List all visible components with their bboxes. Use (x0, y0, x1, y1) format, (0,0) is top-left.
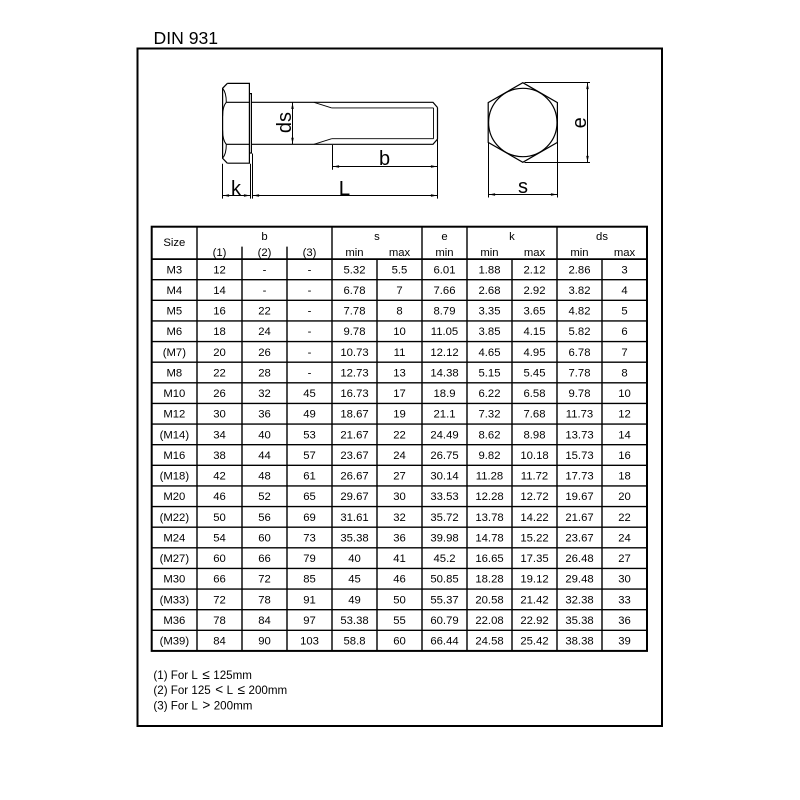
svg-text:-: - (308, 347, 312, 359)
svg-text:(M18): (M18) (160, 471, 190, 483)
svg-text:30: 30 (213, 409, 226, 421)
svg-text:20: 20 (213, 347, 226, 359)
svg-text:max: max (524, 247, 546, 259)
svg-text:30: 30 (618, 574, 631, 586)
svg-text:19.12: 19.12 (520, 574, 548, 586)
svg-text:97: 97 (303, 615, 316, 627)
svg-text:17.73: 17.73 (565, 471, 593, 483)
svg-text:65: 65 (303, 491, 316, 503)
svg-text:21.67: 21.67 (340, 429, 368, 441)
svg-text:3.65: 3.65 (524, 306, 546, 318)
svg-text:55: 55 (393, 615, 406, 627)
svg-text:s: s (374, 231, 380, 243)
svg-text:4.65: 4.65 (479, 347, 501, 359)
svg-text:7.78: 7.78 (344, 306, 366, 318)
svg-text:35.38: 35.38 (340, 532, 368, 544)
svg-text:103: 103 (300, 635, 319, 647)
svg-text:21.67: 21.67 (565, 512, 593, 524)
svg-text:7.32: 7.32 (479, 409, 501, 421)
svg-text:40: 40 (348, 553, 361, 565)
svg-text:46: 46 (213, 491, 226, 503)
svg-text:45: 45 (303, 388, 316, 400)
svg-text:-: - (263, 285, 267, 297)
svg-text:-: - (308, 285, 312, 297)
svg-text:19.67: 19.67 (565, 491, 593, 503)
svg-text:7.68: 7.68 (524, 409, 546, 421)
svg-text:9.78: 9.78 (344, 326, 366, 338)
svg-text:26.48: 26.48 (565, 553, 593, 565)
svg-text:11.72: 11.72 (521, 471, 548, 483)
svg-text:48: 48 (258, 471, 271, 483)
svg-text:6.22: 6.22 (479, 388, 501, 400)
svg-text:10: 10 (618, 388, 631, 400)
svg-text:13.78: 13.78 (475, 512, 503, 524)
svg-text:5.15: 5.15 (479, 367, 501, 379)
svg-text:7.66: 7.66 (434, 285, 456, 297)
svg-text:18.67: 18.67 (340, 409, 368, 421)
svg-text:2.68: 2.68 (479, 285, 501, 297)
svg-text:16.65: 16.65 (475, 553, 503, 565)
svg-text:35.72: 35.72 (430, 512, 458, 524)
svg-text:24: 24 (258, 326, 271, 338)
svg-text:66: 66 (213, 574, 226, 586)
svg-text:46: 46 (393, 574, 406, 586)
svg-text:3.85: 3.85 (479, 326, 501, 338)
svg-text:35.38: 35.38 (565, 615, 593, 627)
svg-text:(M39): (M39) (160, 635, 190, 647)
svg-text:6.01: 6.01 (434, 264, 456, 276)
svg-text:(M33): (M33) (160, 594, 190, 606)
svg-text:25.42: 25.42 (520, 635, 548, 647)
svg-text:(2): (2) (258, 247, 272, 259)
svg-text:min: min (480, 247, 498, 259)
svg-text:85: 85 (303, 574, 316, 586)
svg-text:30: 30 (393, 491, 406, 503)
svg-text:-: - (263, 264, 267, 276)
svg-text:18.28: 18.28 (475, 574, 503, 586)
svg-text:78: 78 (258, 594, 271, 606)
svg-text:36: 36 (258, 409, 271, 421)
svg-text:72: 72 (213, 594, 226, 606)
svg-text:M3: M3 (166, 264, 182, 276)
svg-text:44: 44 (258, 450, 271, 462)
svg-text:31.61: 31.61 (340, 512, 368, 524)
svg-text:4.95: 4.95 (524, 347, 546, 359)
svg-text:12.28: 12.28 (475, 491, 503, 503)
svg-text:4: 4 (621, 285, 627, 297)
svg-text:16.73: 16.73 (340, 388, 368, 400)
svg-text:max: max (389, 247, 411, 259)
svg-text:20: 20 (618, 491, 631, 503)
svg-text:3: 3 (621, 264, 627, 276)
svg-text:-: - (308, 264, 312, 276)
svg-text:min: min (570, 247, 588, 259)
svg-text:12.73: 12.73 (340, 367, 368, 379)
svg-text:54: 54 (213, 532, 226, 544)
svg-text:52: 52 (258, 491, 271, 503)
svg-text:27: 27 (393, 471, 406, 483)
svg-text:-: - (308, 326, 312, 338)
svg-text:19: 19 (393, 409, 406, 421)
svg-text:(3) For L>200mm: (3) For L>200mm (153, 698, 252, 713)
svg-text:66.44: 66.44 (430, 635, 458, 647)
svg-text:3.82: 3.82 (569, 285, 591, 297)
svg-text:42: 42 (213, 471, 226, 483)
svg-text:15.22: 15.22 (520, 532, 548, 544)
svg-text:10.18: 10.18 (520, 450, 548, 462)
svg-text:12: 12 (213, 264, 226, 276)
svg-text:(M27): (M27) (160, 553, 190, 565)
svg-text:3.35: 3.35 (479, 306, 501, 318)
svg-text:84: 84 (258, 615, 271, 627)
svg-text:60: 60 (258, 532, 271, 544)
svg-text:5.5: 5.5 (392, 264, 408, 276)
svg-text:ds: ds (274, 112, 296, 133)
svg-text:16: 16 (213, 306, 226, 318)
svg-text:34: 34 (213, 429, 226, 441)
svg-text:17.35: 17.35 (520, 553, 548, 565)
svg-text:8.62: 8.62 (479, 429, 501, 441)
svg-text:14.38: 14.38 (430, 367, 458, 379)
svg-text:M6: M6 (166, 326, 182, 338)
svg-text:49: 49 (348, 594, 361, 606)
svg-text:39.98: 39.98 (430, 532, 458, 544)
svg-text:s: s (518, 176, 528, 198)
svg-text:18: 18 (213, 326, 226, 338)
svg-text:30.14: 30.14 (430, 471, 458, 483)
svg-text:22: 22 (618, 512, 631, 524)
svg-text:9.82: 9.82 (479, 450, 501, 462)
svg-text:39: 39 (618, 635, 631, 647)
svg-text:79: 79 (303, 553, 316, 565)
svg-text:10: 10 (393, 326, 406, 338)
svg-text:e: e (441, 231, 447, 243)
svg-text:5: 5 (621, 306, 627, 318)
svg-text:38.38: 38.38 (565, 635, 593, 647)
svg-text:72: 72 (258, 574, 271, 586)
svg-text:ds: ds (596, 231, 608, 243)
svg-text:24: 24 (393, 450, 406, 462)
svg-text:27: 27 (618, 553, 631, 565)
svg-text:22.08: 22.08 (475, 615, 503, 627)
svg-text:5.82: 5.82 (569, 326, 591, 338)
svg-text:5.32: 5.32 (344, 264, 366, 276)
svg-text:17: 17 (393, 388, 406, 400)
svg-text:28: 28 (258, 367, 271, 379)
svg-text:22: 22 (393, 429, 406, 441)
svg-text:min: min (435, 247, 453, 259)
svg-text:29.67: 29.67 (340, 491, 368, 503)
svg-text:Size: Size (163, 237, 185, 249)
svg-text:M36: M36 (163, 615, 185, 627)
svg-text:8: 8 (621, 367, 627, 379)
svg-text:M12: M12 (163, 409, 185, 421)
svg-text:69: 69 (303, 512, 316, 524)
svg-text:32.38: 32.38 (565, 594, 593, 606)
svg-text:b: b (261, 231, 267, 243)
svg-text:14.78: 14.78 (475, 532, 503, 544)
svg-text:41: 41 (393, 553, 406, 565)
svg-text:13.73: 13.73 (565, 429, 593, 441)
svg-text:11.05: 11.05 (431, 326, 458, 338)
svg-text:M4: M4 (166, 285, 182, 297)
svg-text:b: b (379, 148, 390, 170)
svg-text:9.78: 9.78 (569, 388, 591, 400)
svg-text:45.2: 45.2 (434, 553, 456, 565)
svg-text:(1): (1) (213, 247, 227, 259)
svg-text:22: 22 (258, 306, 271, 318)
svg-text:14: 14 (213, 285, 226, 297)
svg-text:73: 73 (303, 532, 316, 544)
svg-text:14: 14 (618, 429, 631, 441)
svg-text:12.12: 12.12 (430, 347, 458, 359)
svg-text:M30: M30 (163, 574, 185, 586)
svg-text:32: 32 (258, 388, 271, 400)
svg-text:1.88: 1.88 (479, 264, 501, 276)
svg-text:4.82: 4.82 (569, 306, 591, 318)
svg-text:k: k (231, 178, 242, 200)
svg-text:11: 11 (394, 347, 406, 359)
svg-text:78: 78 (213, 615, 226, 627)
svg-text:6.58: 6.58 (524, 388, 546, 400)
svg-text:M20: M20 (163, 491, 185, 503)
svg-text:e: e (569, 117, 591, 128)
svg-text:M10: M10 (163, 388, 185, 400)
svg-text:23.67: 23.67 (340, 450, 368, 462)
svg-text:8.79: 8.79 (434, 306, 456, 318)
svg-text:8: 8 (396, 306, 402, 318)
svg-text:24.49: 24.49 (430, 429, 458, 441)
svg-text:(M22): (M22) (160, 512, 190, 524)
svg-text:(3): (3) (303, 247, 317, 259)
svg-text:38: 38 (213, 450, 226, 462)
svg-text:7: 7 (621, 347, 627, 359)
svg-text:DIN 931: DIN 931 (154, 28, 219, 48)
svg-text:55.37: 55.37 (430, 594, 458, 606)
svg-text:26.75: 26.75 (430, 450, 458, 462)
svg-text:58.8: 58.8 (344, 635, 366, 647)
svg-text:16: 16 (618, 450, 631, 462)
svg-text:11.28: 11.28 (476, 471, 503, 483)
svg-text:7: 7 (396, 285, 402, 297)
svg-text:12: 12 (618, 409, 631, 421)
svg-text:33.53: 33.53 (430, 491, 458, 503)
svg-text:8.98: 8.98 (524, 429, 546, 441)
svg-text:22.92: 22.92 (520, 615, 548, 627)
svg-text:15.73: 15.73 (565, 450, 593, 462)
svg-text:M24: M24 (163, 532, 185, 544)
svg-text:18.9: 18.9 (434, 388, 456, 400)
svg-text:12.72: 12.72 (520, 491, 548, 503)
svg-text:21.42: 21.42 (520, 594, 548, 606)
svg-text:22: 22 (213, 367, 226, 379)
svg-text:50.85: 50.85 (430, 574, 458, 586)
svg-text:53.38: 53.38 (340, 615, 368, 627)
svg-text:61: 61 (303, 471, 316, 483)
svg-text:23.67: 23.67 (565, 532, 593, 544)
svg-text:11.73: 11.73 (566, 409, 593, 421)
svg-text:26: 26 (258, 347, 271, 359)
svg-text:50: 50 (213, 512, 226, 524)
svg-text:45: 45 (348, 574, 361, 586)
svg-text:60: 60 (393, 635, 406, 647)
svg-text:4.15: 4.15 (524, 326, 546, 338)
svg-text:24: 24 (618, 532, 631, 544)
svg-text:53: 53 (303, 429, 316, 441)
svg-text:56: 56 (258, 512, 271, 524)
svg-text:18: 18 (618, 471, 631, 483)
svg-text:21.1: 21.1 (434, 409, 456, 421)
svg-text:(1) For L≤125mm: (1) For L≤125mm (153, 667, 252, 682)
svg-text:13: 13 (393, 367, 406, 379)
svg-text:6: 6 (621, 326, 627, 338)
svg-text:2.12: 2.12 (524, 264, 546, 276)
svg-text:L: L (339, 177, 350, 200)
svg-text:-: - (308, 367, 312, 379)
svg-text:84: 84 (213, 635, 226, 647)
svg-text:66: 66 (258, 553, 271, 565)
svg-text:(2) For 125<L≤200mm: (2) For 125<L≤200mm (153, 682, 287, 697)
svg-text:14.22: 14.22 (520, 512, 548, 524)
svg-text:49: 49 (303, 409, 316, 421)
svg-text:M8: M8 (166, 367, 182, 379)
svg-text:6.78: 6.78 (569, 347, 591, 359)
svg-text:36: 36 (393, 532, 406, 544)
svg-text:20.58: 20.58 (475, 594, 503, 606)
svg-text:91: 91 (303, 594, 316, 606)
svg-text:max: max (614, 247, 636, 259)
svg-text:10.73: 10.73 (340, 347, 368, 359)
svg-text:7.78: 7.78 (569, 367, 591, 379)
svg-text:60: 60 (213, 553, 226, 565)
svg-text:M16: M16 (163, 450, 185, 462)
svg-text:40: 40 (258, 429, 271, 441)
svg-text:57: 57 (303, 450, 316, 462)
svg-text:29.48: 29.48 (565, 574, 593, 586)
svg-text:(M7): (M7) (163, 347, 186, 359)
svg-text:5.45: 5.45 (524, 367, 546, 379)
svg-text:33: 33 (618, 594, 631, 606)
svg-text:2.92: 2.92 (524, 285, 546, 297)
svg-text:26: 26 (213, 388, 226, 400)
svg-text:90: 90 (258, 635, 271, 647)
svg-text:26.67: 26.67 (340, 471, 368, 483)
svg-text:24.58: 24.58 (475, 635, 503, 647)
svg-text:2.86: 2.86 (569, 264, 591, 276)
svg-text:(M14): (M14) (160, 429, 190, 441)
svg-text:50: 50 (393, 594, 406, 606)
svg-text:6.78: 6.78 (344, 285, 366, 297)
svg-text:k: k (509, 231, 515, 243)
svg-text:32: 32 (393, 512, 406, 524)
svg-text:60.79: 60.79 (430, 615, 458, 627)
svg-text:-: - (308, 306, 312, 318)
svg-text:min: min (345, 247, 363, 259)
svg-text:36: 36 (618, 615, 631, 627)
svg-text:M5: M5 (166, 306, 182, 318)
